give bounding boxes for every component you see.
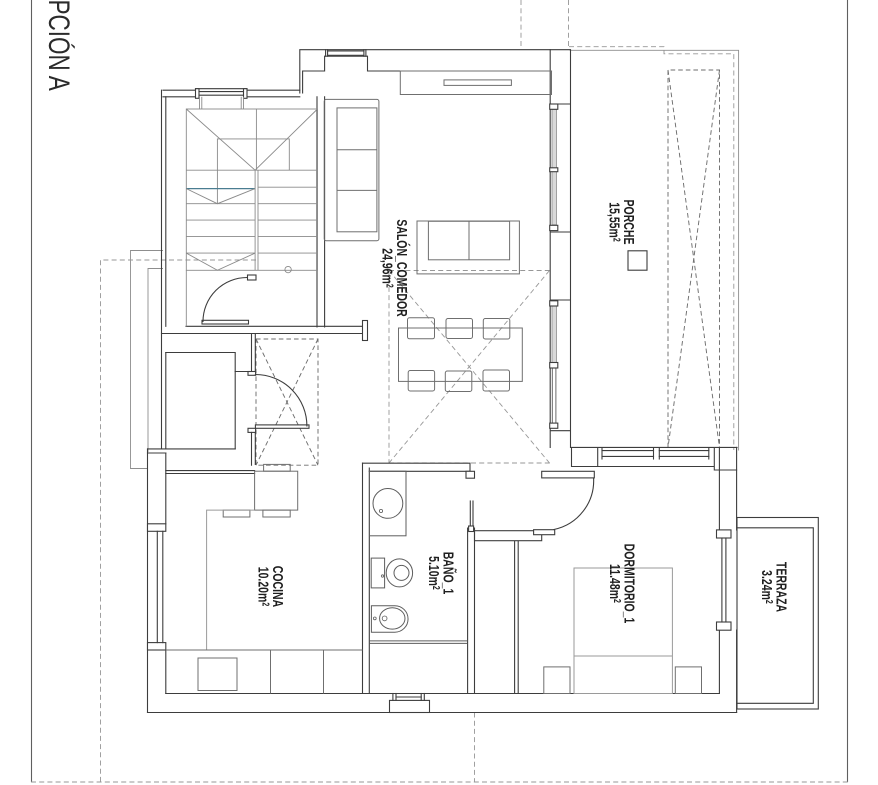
svg-text:COCINA10.20m2: COCINA10.20m2 — [255, 566, 287, 607]
svg-text:OPCIÓN A: OPCIÓN A — [42, 0, 76, 91]
